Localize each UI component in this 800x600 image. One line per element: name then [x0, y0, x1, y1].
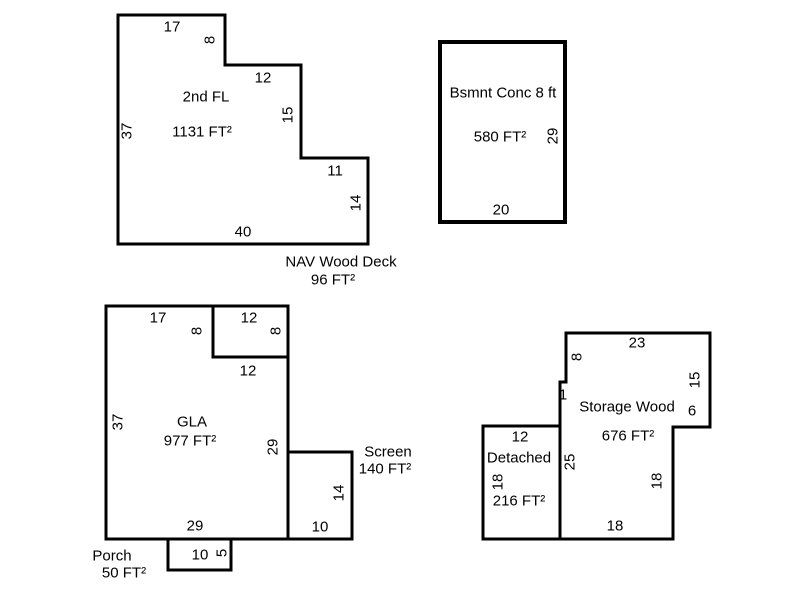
- basement-area: 580 FT²: [474, 130, 527, 145]
- gla-dim-notch: 8: [190, 327, 205, 335]
- detached-label: Detached: [487, 451, 551, 466]
- second-floor-dim-notch: 8: [203, 36, 218, 44]
- screen-label: Screen: [364, 445, 412, 460]
- second-floor-dim-top: 17: [164, 20, 181, 35]
- second-floor-dim-left: 37: [120, 123, 135, 140]
- storage-dim-lower-right: 18: [650, 473, 665, 490]
- storage-label: Storage Wood: [579, 400, 675, 415]
- detached-area: 216 FT²: [493, 494, 546, 509]
- gla-label: GLA: [177, 415, 207, 430]
- gla-dim-bottom: 29: [187, 519, 204, 534]
- porch-label: Porch: [92, 549, 131, 564]
- gla-area: 977 FT²: [164, 434, 217, 449]
- storage-dim-upper-right: 15: [688, 372, 703, 389]
- screen-dim-bottom: 10: [312, 520, 329, 535]
- second-floor-area: 1131 FT²: [172, 125, 232, 140]
- gla-dim-top: 17: [150, 311, 167, 326]
- storage-dim-upper-left: 8: [570, 353, 585, 361]
- second-floor-dim-lower: 11: [327, 164, 343, 179]
- porch-dim-right: 5: [215, 549, 230, 557]
- gla-dim-inner: 12: [240, 364, 257, 379]
- floorplan-sketch: 17 8 12 2nd FL 15 1131 FT² 37 11 14 40 N…: [0, 0, 800, 600]
- basement-dim-bottom: 20: [493, 203, 510, 218]
- floorplan-outlines: [0, 0, 800, 600]
- storage-dim-left: 25: [563, 454, 578, 471]
- basement-label: Bsmnt Conc 8 ft: [450, 86, 557, 101]
- wood-deck-dim-top: 12: [241, 311, 258, 326]
- second-floor-label: 2nd FL: [183, 90, 230, 105]
- detached-dim-left: 18: [491, 474, 506, 491]
- second-floor-dim-step: 12: [255, 71, 272, 86]
- wood-deck-dim-right: 8: [269, 327, 284, 335]
- detached-dim-top: 12: [512, 430, 529, 445]
- second-floor-dim-step-side: 15: [281, 107, 296, 124]
- second-floor-outline: [118, 15, 368, 244]
- second-floor-dim-right: 14: [349, 195, 364, 212]
- screen-area: 140 FT²: [359, 462, 412, 477]
- storage-area: 676 FT²: [602, 429, 655, 444]
- storage-dim-top: 23: [629, 336, 646, 351]
- storage-dim-jog: 1: [559, 388, 567, 403]
- gla-dim-left: 37: [111, 414, 126, 431]
- storage-dim-bottom: 18: [607, 519, 624, 534]
- porch-dim-bottom: 10: [192, 548, 209, 563]
- second-floor-dim-bottom: 40: [235, 225, 252, 240]
- basement-dim-right: 29: [546, 128, 561, 145]
- wood-deck-label: NAV Wood Deck: [285, 255, 396, 270]
- porch-area: 50 FT²: [102, 566, 146, 581]
- wood-deck-area: 96 FT²: [311, 273, 355, 288]
- screen-dim-right: 14: [332, 485, 347, 502]
- storage-dim-notch: 6: [688, 404, 696, 419]
- gla-dim-right: 29: [266, 439, 281, 456]
